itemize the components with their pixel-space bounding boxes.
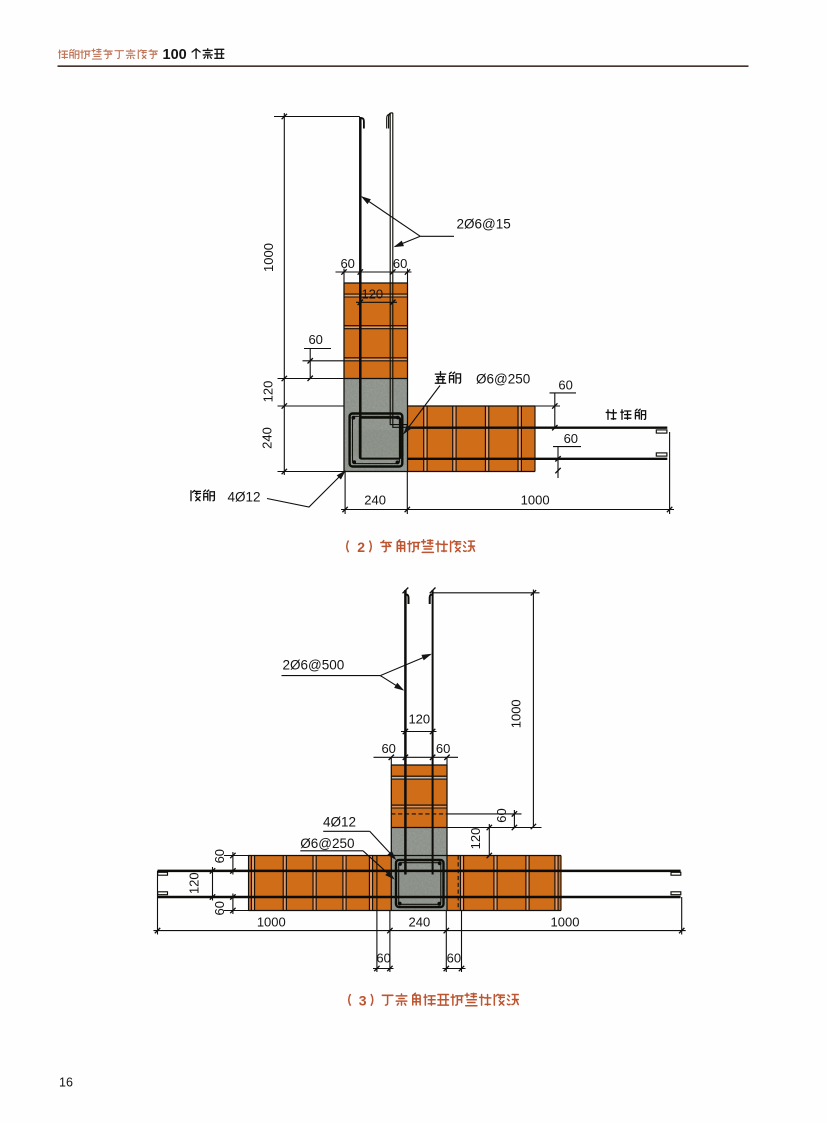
- svg-text:120: 120: [468, 828, 483, 850]
- svg-text:60: 60: [212, 901, 227, 915]
- svg-text:1000: 1000: [257, 914, 286, 929]
- svg-text:60: 60: [494, 808, 509, 822]
- svg-text:4Ø12: 4Ø12: [228, 490, 261, 505]
- svg-text:1000: 1000: [261, 243, 276, 272]
- svg-text:60: 60: [447, 950, 461, 965]
- svg-text:16: 16: [59, 1076, 73, 1090]
- svg-text:60: 60: [393, 256, 407, 271]
- svg-text:60: 60: [376, 950, 390, 965]
- svg-text:60: 60: [308, 332, 322, 347]
- svg-text:60: 60: [340, 256, 354, 271]
- svg-text:2Ø6@15: 2Ø6@15: [457, 217, 511, 232]
- svg-text:120: 120: [187, 872, 202, 894]
- svg-text:60: 60: [564, 431, 578, 446]
- svg-text:1000: 1000: [551, 914, 580, 929]
- svg-text:60: 60: [436, 741, 450, 756]
- svg-text:3: 3: [359, 992, 367, 1008]
- svg-text:120: 120: [260, 381, 275, 403]
- svg-text:60: 60: [212, 849, 227, 863]
- svg-text:Ø6@250: Ø6@250: [476, 372, 530, 387]
- svg-text:240: 240: [364, 493, 386, 508]
- svg-text:120: 120: [408, 711, 430, 726]
- svg-text:1000: 1000: [521, 493, 550, 508]
- svg-text:240: 240: [259, 427, 274, 449]
- svg-text:1000: 1000: [508, 699, 523, 728]
- svg-text:2: 2: [357, 539, 365, 555]
- svg-text:60: 60: [558, 378, 572, 393]
- svg-text:4Ø12: 4Ø12: [323, 814, 356, 829]
- svg-text:240: 240: [409, 914, 431, 929]
- svg-text:100: 100: [163, 47, 187, 63]
- svg-text:Ø6@250: Ø6@250: [300, 836, 354, 851]
- svg-text:120: 120: [361, 286, 383, 301]
- svg-text:60: 60: [381, 741, 395, 756]
- svg-text:2Ø6@500: 2Ø6@500: [283, 658, 345, 673]
